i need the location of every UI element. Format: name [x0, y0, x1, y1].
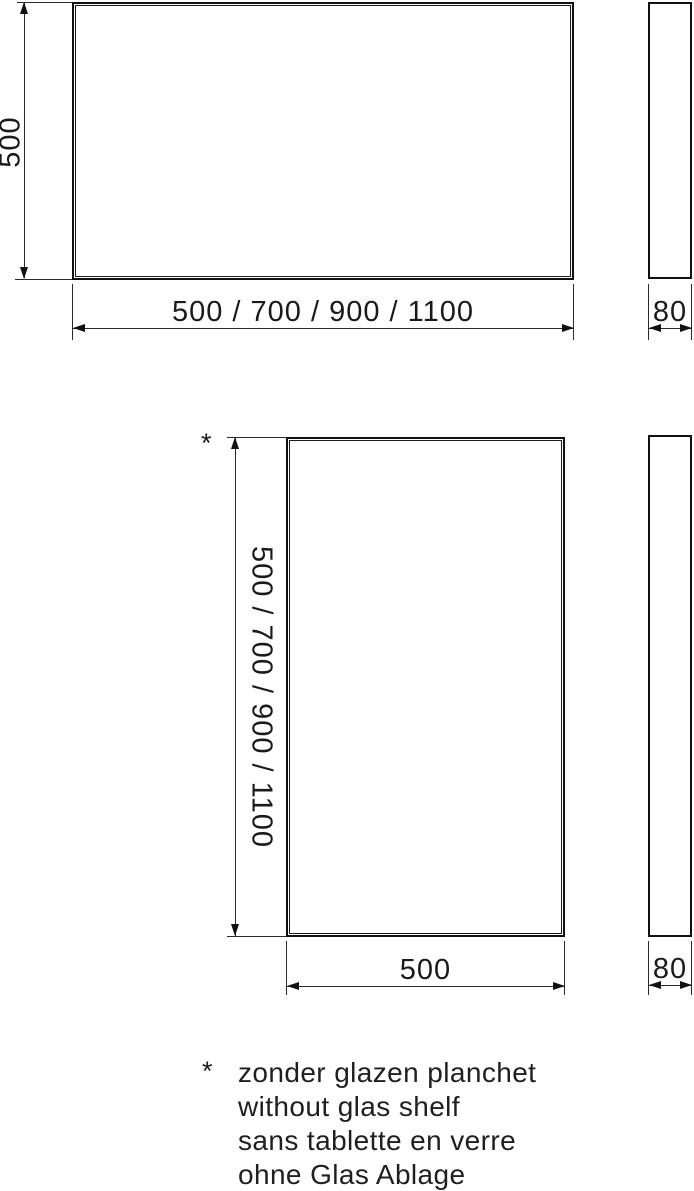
depth-dimension-label: 80 [646, 298, 694, 327]
arrowhead-down-icon [20, 267, 28, 279]
footnote-asterisk: * [202, 1058, 213, 1085]
dimension-drawing-page: 500 500 / 700 / 900 / 1100 80 * 500 / 70… [0, 0, 694, 1191]
width-dimension-label: 500 / 700 / 900 / 1100 [72, 298, 574, 327]
dimension-line-height [235, 438, 236, 936]
asterisk-note-marker: * [201, 430, 212, 457]
footnote-line-fr: sans tablette en verre [238, 1124, 536, 1158]
mirror-outline-portrait [286, 437, 565, 937]
dimension-line-width [287, 986, 564, 987]
depth-dimension-label: 80 [646, 955, 694, 984]
mirror-inner-line [289, 440, 562, 934]
height-dimension-label: 500 [0, 116, 26, 167]
footnote-line-en: without glas shelf [238, 1090, 536, 1124]
dimension-line-width [73, 328, 573, 329]
footnote-line-de: ohne Glas Ablage [238, 1158, 536, 1191]
extension-line [227, 936, 286, 937]
extension-line [15, 279, 72, 280]
width-dimension-label: 500 [286, 956, 565, 985]
arrowhead-up-icon [231, 437, 239, 449]
side-view-portrait [648, 435, 692, 937]
footnote-line-nl: zonder glazen planchet [238, 1056, 536, 1090]
arrowhead-down-icon [231, 924, 239, 936]
arrowhead-up-icon [20, 2, 28, 14]
mirror-outline-landscape [72, 2, 574, 280]
mirror-inner-line [75, 5, 571, 277]
height-dimension-label: 500 / 700 / 900 / 1100 [247, 546, 276, 848]
side-view-landscape [648, 2, 692, 279]
footnote-text-block: zonder glazen planchet without glas shel… [238, 1056, 536, 1191]
